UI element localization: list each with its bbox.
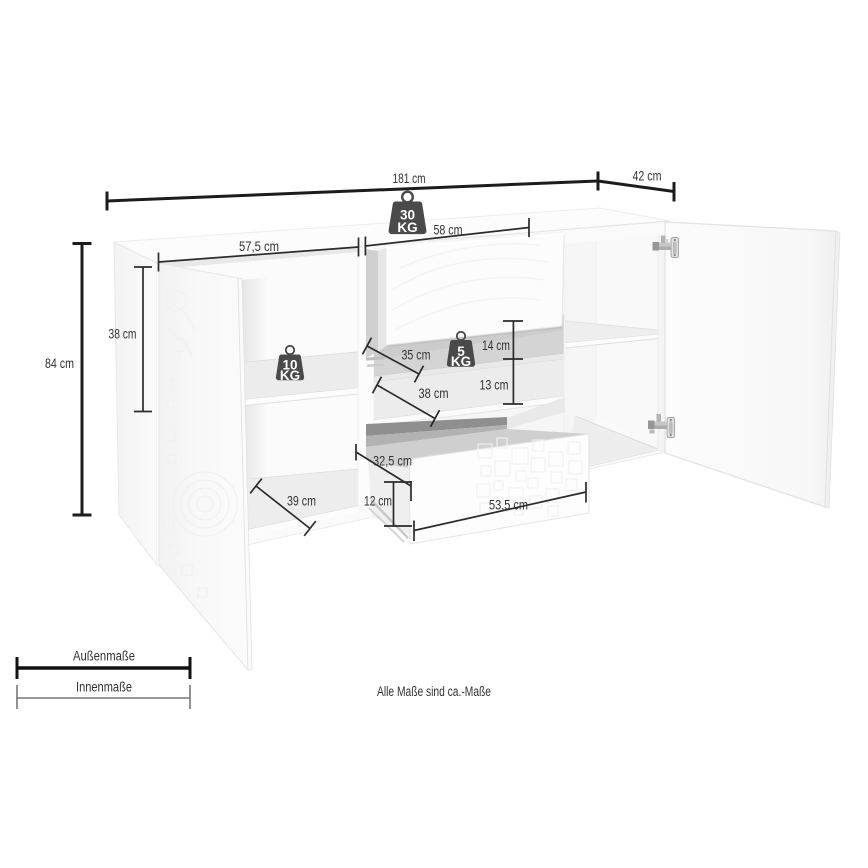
svg-text:38 cm: 38 cm <box>109 327 137 342</box>
svg-text:14 cm: 14 cm <box>482 338 510 353</box>
svg-text:84 cm: 84 cm <box>45 356 74 371</box>
svg-text:38 cm: 38 cm <box>419 386 449 401</box>
svg-text:KG: KG <box>451 354 471 369</box>
svg-text:KG: KG <box>397 220 417 235</box>
svg-text:53,5 cm: 53,5 cm <box>489 498 528 513</box>
svg-text:35 cm: 35 cm <box>402 348 431 363</box>
svg-text:181 cm: 181 cm <box>393 171 426 186</box>
svg-text:42 cm: 42 cm <box>633 169 662 184</box>
svg-text:KG: KG <box>280 368 300 383</box>
svg-text:39 cm: 39 cm <box>287 494 316 509</box>
svg-text:12 cm: 12 cm <box>364 494 392 509</box>
svg-text:Innenmaße: Innenmaße <box>76 680 132 695</box>
svg-text:32,5 cm: 32,5 cm <box>373 454 412 469</box>
svg-text:Alle Maße sind ca.-Maße: Alle Maße sind ca.-Maße <box>377 684 491 699</box>
svg-text:13 cm: 13 cm <box>480 378 509 393</box>
svg-text:58 cm: 58 cm <box>434 223 463 238</box>
svg-text:Außenmaße: Außenmaße <box>73 649 135 664</box>
svg-text:57,5 cm: 57,5 cm <box>239 239 279 254</box>
